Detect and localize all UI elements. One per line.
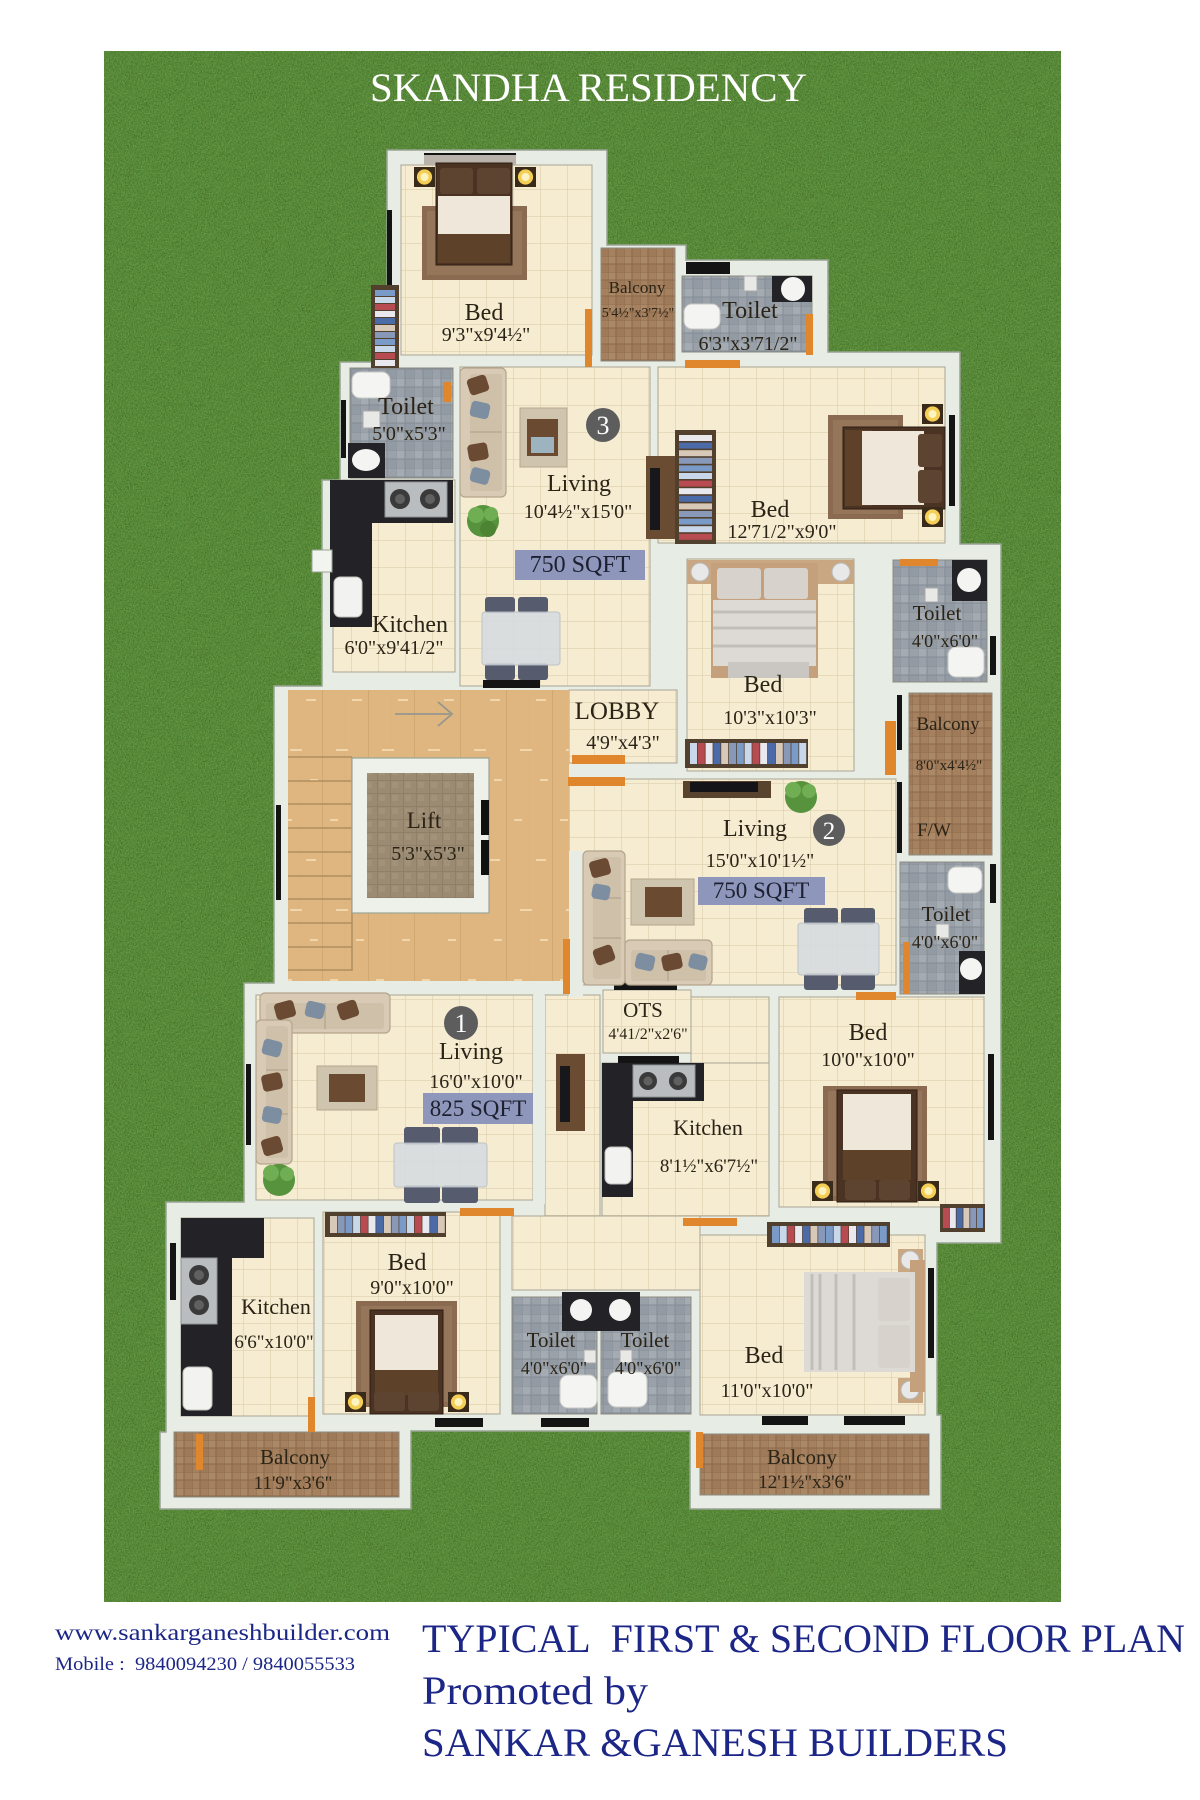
svg-text:16'0"x10'0": 16'0"x10'0" [429,1071,523,1093]
svg-text:Bed: Bed [745,1343,784,1369]
svg-text:10'4½"x15'0": 10'4½"x15'0" [524,501,633,523]
svg-text:Lift: Lift [407,808,442,833]
svg-text:12'71/2"x9'0": 12'71/2"x9'0" [727,521,836,543]
svg-text:825 SQFT: 825 SQFT [430,1096,527,1121]
svg-text:11'9"x3'6": 11'9"x3'6" [254,1473,333,1494]
svg-text:4'0"x6'0": 4'0"x6'0" [912,932,978,952]
svg-text:Bed: Bed [849,1020,888,1046]
svg-text:Bed: Bed [465,300,504,326]
svg-text:750 SQFT: 750 SQFT [713,878,810,903]
svg-text:www.sankarganeshbuilder.com: www.sankarganeshbuilder.com [55,1620,390,1645]
svg-text:8'1½"x6'7½": 8'1½"x6'7½" [660,1156,758,1177]
svg-text:Kitchen: Kitchen [241,1294,311,1319]
svg-text:4'0"x6'0": 4'0"x6'0" [521,1358,587,1378]
svg-text:Balcony: Balcony [609,278,666,297]
svg-text:3: 3 [597,411,610,440]
svg-text:SANKAR &GANESH BUILDERS: SANKAR &GANESH BUILDERS [422,1720,1008,1765]
svg-text:9'3"x9'4½": 9'3"x9'4½" [442,324,531,346]
svg-text:TYPICAL FIRST & SECOND FLOOR: TYPICAL FIRST & SECOND FLOOR PLAN [422,1616,1185,1661]
svg-text:Mobile : 9840094230 / 9840055: Mobile : 9840094230 / 9840055533 [55,1654,355,1675]
svg-text:OTS: OTS [623,998,663,1022]
svg-text:Balcony: Balcony [260,1445,330,1469]
svg-text:5'4½"x3'7½": 5'4½"x3'7½" [602,306,674,321]
svg-text:1: 1 [455,1009,468,1038]
svg-text:10'3"x10'3": 10'3"x10'3" [723,707,817,729]
svg-text:Living: Living [547,471,611,497]
svg-text:Bed: Bed [744,672,783,698]
svg-text:5'0"x5'3": 5'0"x5'3" [372,423,446,445]
svg-text:Toilet: Toilet [527,1328,576,1352]
svg-text:10'0"x10'0": 10'0"x10'0" [821,1049,915,1071]
svg-text:Toilet: Toilet [913,601,962,625]
svg-text:Balcony: Balcony [916,714,980,735]
svg-text:LOBBY: LOBBY [575,698,660,725]
svg-text:750 SQFT: 750 SQFT [530,552,631,578]
svg-text:15'0"x10'1½": 15'0"x10'1½" [706,850,815,872]
svg-text:Kitchen: Kitchen [673,1115,743,1140]
svg-text:4'0"x6'0": 4'0"x6'0" [615,1358,681,1378]
svg-text:Toilet: Toilet [722,298,778,324]
svg-text:Living: Living [439,1039,503,1065]
svg-text:9'0"x10'0": 9'0"x10'0" [370,1277,454,1299]
svg-text:4'9"x4'3": 4'9"x4'3" [586,732,660,754]
svg-text:Bed: Bed [751,497,790,523]
svg-text:Balcony: Balcony [767,1445,837,1469]
svg-text:6'0"x9'41/2": 6'0"x9'41/2" [344,637,443,659]
svg-text:Living: Living [723,816,787,842]
svg-text:11'0"x10'0": 11'0"x10'0" [721,1380,814,1402]
svg-text:6'6"x10'0": 6'6"x10'0" [234,1332,313,1353]
svg-text:Bed: Bed [388,1250,427,1276]
svg-text:Toilet: Toilet [378,394,434,420]
svg-text:SKANDHA RESIDENCY: SKANDHA RESIDENCY [370,65,807,110]
svg-text:2: 2 [823,818,836,845]
svg-text:6'3"x3'71/2": 6'3"x3'71/2" [698,333,797,355]
svg-text:5'3"x5'3": 5'3"x5'3" [391,843,465,865]
svg-text:Kitchen: Kitchen [372,612,448,638]
svg-text:4'41/2"x2'6": 4'41/2"x2'6" [608,1026,687,1043]
svg-text:Toilet: Toilet [922,902,971,926]
svg-text:12'1½"x3'6": 12'1½"x3'6" [758,1472,852,1493]
svg-text:Toilet: Toilet [621,1328,670,1352]
svg-text:4'0"x6'0": 4'0"x6'0" [912,631,978,651]
svg-text:8'0"x4'4½": 8'0"x4'4½" [916,758,982,774]
svg-text:Promoted by: Promoted by [422,1668,648,1713]
svg-text:F/W: F/W [917,820,951,841]
